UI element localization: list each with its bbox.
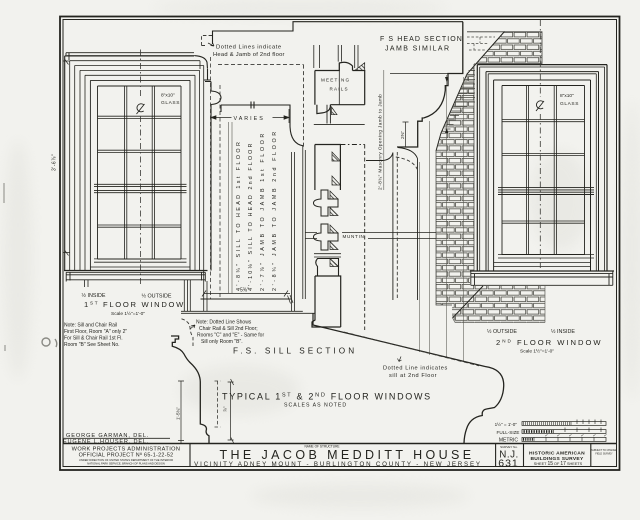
svg-text:Sill only Room "B".: Sill only Room "B". xyxy=(201,339,243,345)
svg-text:SURVEY No.: SURVEY No. xyxy=(500,445,518,449)
svg-text:½ INSIDE: ½ INSIDE xyxy=(551,328,575,335)
svg-text:½ OUTSIDE: ½ OUTSIDE xyxy=(487,328,517,335)
svg-text:Dotted Line indicates: Dotted Line indicates xyxy=(383,366,448,372)
svg-text:2'-7⅞" JAMB TO JAMB 1st FLOOR: 2'-7⅞" JAMB TO JAMB 1st FLOOR xyxy=(260,131,266,291)
svg-text:SCALES AS NOTED: SCALES AS NOTED xyxy=(284,403,347,409)
svg-text:Head & Jamb of 2nd floor: Head & Jamb of 2nd floor xyxy=(213,52,285,58)
svg-text:2'-8¾" Masonry Opening Jamb to: 2'-8¾" Masonry Opening Jamb to Jamb xyxy=(378,94,383,190)
svg-text:JAMB SІMІLAR: JAMB SІMІLAR xyxy=(385,46,450,53)
svg-text:METRIC: METRIC xyxy=(499,438,519,444)
svg-text:Room "B" See Sheet No.: Room "B" See Sheet No. xyxy=(64,342,120,348)
svg-text:THE JACOB MEDDITT HOUSE: THE JACOB MEDDITT HOUSE xyxy=(219,448,474,462)
svg-text:Scale 1½"=1'-0": Scale 1½"=1'-0" xyxy=(520,348,554,355)
svg-text:⅞": ⅞" xyxy=(223,406,228,412)
svg-text:F S HEAD SECTION: F S HEAD SECTION xyxy=(380,36,463,43)
svg-text:Note: Dotted Line Shows: Note: Dotted Line Shows xyxy=(196,320,252,326)
svg-text:1½" = 1'-0": 1½" = 1'-0" xyxy=(495,421,518,427)
svg-text:2⅜": 2⅜" xyxy=(400,131,405,139)
svg-text:4'-8¾" SІLL TO HEAD 1st FLOOR: 4'-8¾" SІLL TO HEAD 1st FLOOR xyxy=(236,140,242,291)
svg-text:Chair Rail & Sill 2nd Floor;: Chair Rail & Sill 2nd Floor; xyxy=(199,326,258,332)
svg-text:MUNTIN: MUNTIN xyxy=(343,234,365,239)
svg-text:NATIONAL PARK SERVICE, BRANCH: NATIONAL PARK SERVICE, BRANCH OF PLANS A… xyxy=(87,461,165,465)
svg-text:RAILS: RAILS xyxy=(330,87,349,92)
svg-text:MEETING: MEETING xyxy=(321,78,350,83)
svg-text:½ INSIDE: ½ INSIDE xyxy=(82,292,106,299)
svg-text:Note: Sill and Chair Rail: Note: Sill and Chair Rail xyxy=(64,323,117,329)
svg-text:5⅜": 5⅜" xyxy=(240,288,249,294)
svg-text:½ OUTSIDE: ½ OUTSIDE xyxy=(142,293,172,300)
svg-text:FULL-SIZE: FULL-SIZE xyxy=(497,430,520,435)
svg-text:GLASS: GLASS xyxy=(560,101,579,107)
svg-text:2ND FLOOR WINDOW: 2ND FLOOR WINDOW xyxy=(496,338,603,347)
svg-text:GLASS: GLASS xyxy=(161,100,180,106)
svg-text:1ST FLOOR WINDOW: 1ST FLOOR WINDOW xyxy=(84,300,185,309)
svg-text:3'-6⅞": 3'-6⅞" xyxy=(52,154,58,171)
svg-text:2'-8¾" JAMB TO JAMB 2nd FLOOR: 2'-8¾" JAMB TO JAMB 2nd FLOOR xyxy=(272,129,278,291)
svg-text:EUGENE L.HOUSER, DEL.: EUGENE L.HOUSER, DEL. xyxy=(63,439,149,445)
svg-text:VICINITY ADNEY MOUNT - BURLING: VICINITY ADNEY MOUNT - BURLINGTON COUNTY… xyxy=(194,461,482,468)
svg-text:TYPICAL 1ST & 2ND FLOOR WINDOW: TYPICAL 1ST & 2ND FLOOR WINDOWS xyxy=(222,392,432,402)
svg-text:Dotted Lines indicate: Dotted Lines indicate xyxy=(216,45,282,51)
svg-text:631: 631 xyxy=(498,458,519,470)
svg-text:8"x10": 8"x10" xyxy=(560,93,574,99)
svg-text:FIELD SURVEY: FIELD SURVEY xyxy=(595,453,613,456)
svg-text:UNDER DIRECTION OF UNITED STAT: UNDER DIRECTION OF UNITED STATES DEPARTM… xyxy=(79,458,173,462)
svg-text:Rooms "C" and "E" - Same for: Rooms "C" and "E" - Same for xyxy=(197,333,264,339)
svg-text:8"x10": 8"x10" xyxy=(161,93,175,99)
svg-text:OFFICIAL PROJECT Nº 65-1-22-52: OFFICIAL PROJECT Nº 65-1-22-52 xyxy=(79,453,174,459)
svg-text:First Floor, Room "A" only 2": First Floor, Room "A" only 2" xyxy=(64,329,127,335)
svg-text:1'-5¾": 1'-5¾" xyxy=(176,407,181,420)
svg-text:VARIES: VARIES xyxy=(234,116,265,122)
svg-text:HISTORIC AMERICAN: HISTORIC AMERICAN xyxy=(529,451,585,457)
svg-text:4'-10⅛" SІLL TO HEAD 2nd FLOOR: 4'-10⅛" SІLL TO HEAD 2nd FLOOR xyxy=(248,142,254,291)
svg-text:F.S. SILL SECTION: F.S. SILL SECTION xyxy=(233,347,357,356)
svg-text:Scale 1½"=1'-0": Scale 1½"=1'-0" xyxy=(111,310,145,317)
svg-text:sill at 2nd Floor: sill at 2nd Floor xyxy=(389,373,437,379)
svg-text:For Sill & Chair Rail 1st Fl.: For Sill & Chair Rail 1st Fl. xyxy=(64,336,123,342)
